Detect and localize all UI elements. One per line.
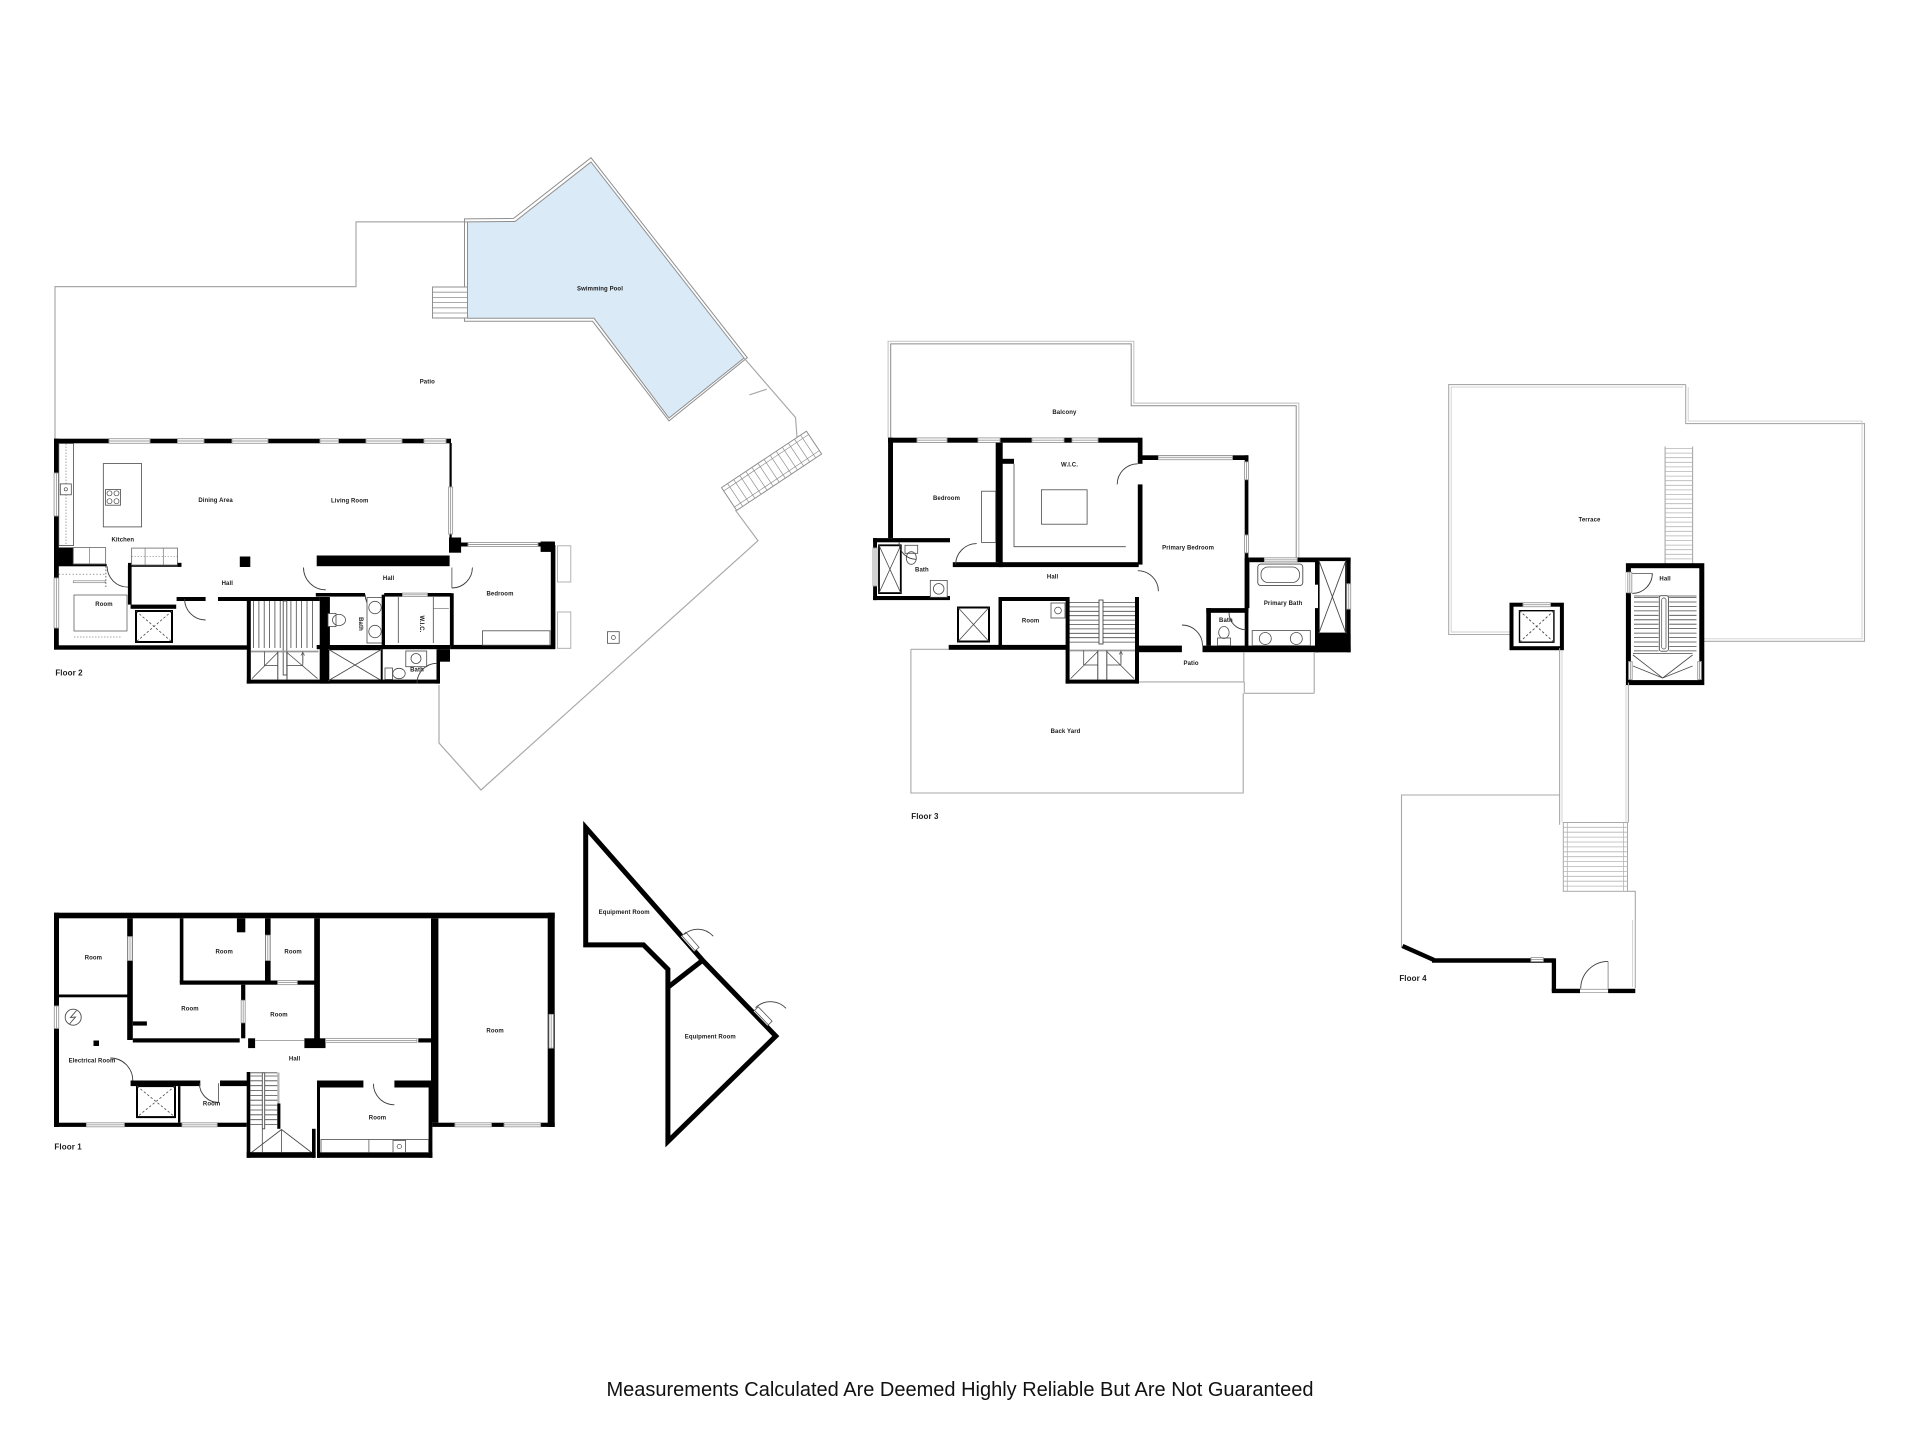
svg-text:W.I.C.: W.I.C. xyxy=(1061,462,1078,468)
svg-text:Balcony: Balcony xyxy=(1052,410,1077,416)
svg-text:Dining Area: Dining Area xyxy=(198,498,233,504)
svg-text:Electrical Room: Electrical Room xyxy=(69,1059,116,1065)
svg-text:Floor 3: Floor 3 xyxy=(911,812,939,821)
svg-text:Hall: Hall xyxy=(222,581,234,587)
svg-text:Bath: Bath xyxy=(357,617,363,631)
svg-text:Floor 2: Floor 2 xyxy=(55,669,83,678)
svg-text:Room: Room xyxy=(270,1013,287,1019)
svg-text:Room: Room xyxy=(203,1102,220,1108)
svg-text:Floor 1: Floor 1 xyxy=(54,1143,82,1152)
svg-text:Living Room: Living Room xyxy=(331,498,368,504)
svg-text:Hall: Hall xyxy=(1047,575,1059,581)
svg-text:Floor 4: Floor 4 xyxy=(1399,974,1427,983)
svg-text:Terrace: Terrace xyxy=(1579,517,1602,523)
svg-text:Primary Bath: Primary Bath xyxy=(1264,601,1303,607)
svg-text:Equipment Room: Equipment Room xyxy=(599,910,650,916)
svg-text:Swimming Pool: Swimming Pool xyxy=(577,287,623,293)
svg-text:Bedroom: Bedroom xyxy=(933,496,960,502)
svg-text:Room: Room xyxy=(215,950,232,956)
svg-text:Room: Room xyxy=(284,950,301,956)
svg-text:Room: Room xyxy=(486,1028,503,1034)
svg-text:Measurements Calculated Are De: Measurements Calculated Are Deemed Highl… xyxy=(606,1379,1313,1401)
svg-text:Patio: Patio xyxy=(1184,661,1199,667)
svg-text:Back Yard: Back Yard xyxy=(1051,729,1081,735)
svg-text:Room: Room xyxy=(85,955,102,961)
svg-text:Room: Room xyxy=(95,602,112,608)
svg-text:Room: Room xyxy=(181,1006,198,1012)
svg-text:Primary Bedroom: Primary Bedroom xyxy=(1162,545,1214,551)
svg-text:Patio: Patio xyxy=(420,379,435,385)
svg-text:Hall: Hall xyxy=(1659,577,1671,583)
svg-text:Room: Room xyxy=(369,1116,386,1122)
svg-text:Equipment Room: Equipment Room xyxy=(685,1035,736,1041)
svg-text:Bedroom: Bedroom xyxy=(486,591,513,597)
svg-text:Room: Room xyxy=(1022,618,1039,624)
svg-text:Hall: Hall xyxy=(289,1056,301,1062)
svg-text:Bath: Bath xyxy=(1219,618,1233,624)
svg-text:Hall: Hall xyxy=(383,576,395,582)
svg-text:W.I.C.: W.I.C. xyxy=(418,616,424,633)
svg-text:Bath: Bath xyxy=(915,568,929,574)
svg-text:Kitchen: Kitchen xyxy=(111,537,134,543)
